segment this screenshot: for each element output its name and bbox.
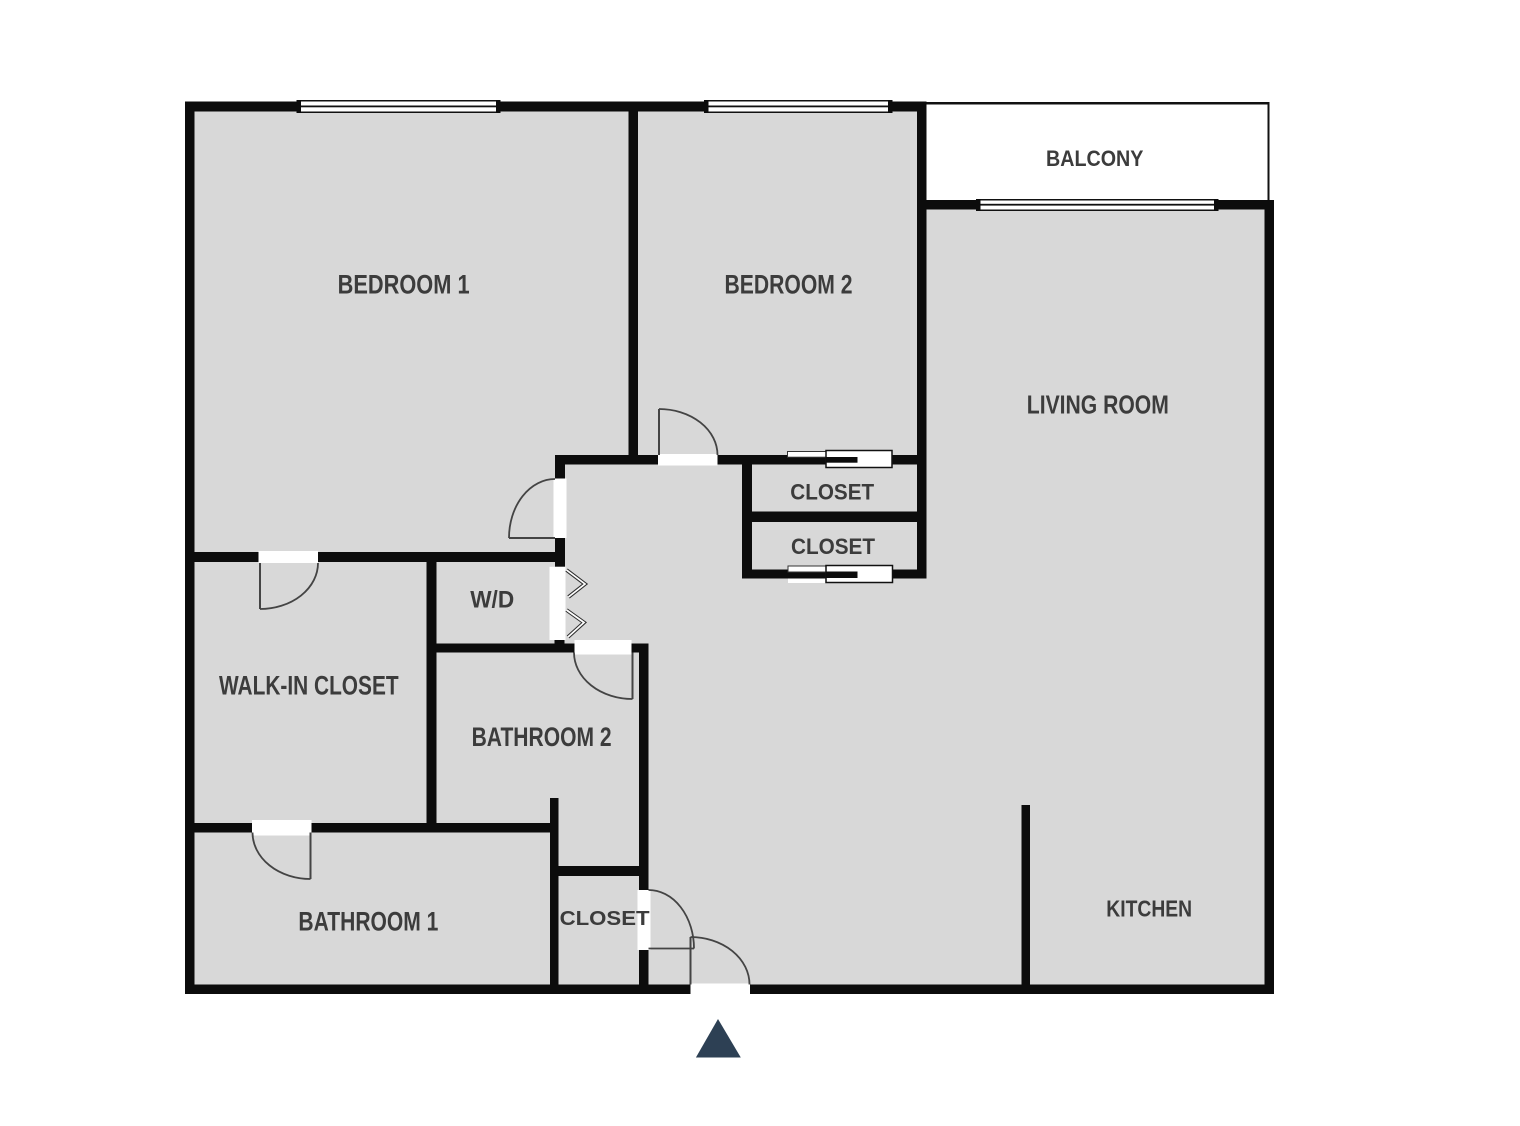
svg-text:BEDROOM 1: BEDROOM 1 xyxy=(338,270,470,300)
svg-text:BEDROOM 2: BEDROOM 2 xyxy=(725,270,853,300)
svg-text:W/D: W/D xyxy=(470,587,514,614)
svg-text:CLOSET: CLOSET xyxy=(560,907,651,930)
svg-text:KITCHEN: KITCHEN xyxy=(1106,895,1192,921)
svg-text:BATHROOM 2: BATHROOM 2 xyxy=(472,722,612,752)
svg-text:BALCONY: BALCONY xyxy=(1046,146,1144,171)
svg-text:LIVING ROOM: LIVING ROOM xyxy=(1027,389,1169,419)
svg-text:CLOSET: CLOSET xyxy=(791,534,876,559)
svg-text:CLOSET: CLOSET xyxy=(790,479,874,504)
svg-text:WALK-IN CLOSET: WALK-IN CLOSET xyxy=(219,671,399,701)
svg-text:BATHROOM 1: BATHROOM 1 xyxy=(298,907,438,937)
